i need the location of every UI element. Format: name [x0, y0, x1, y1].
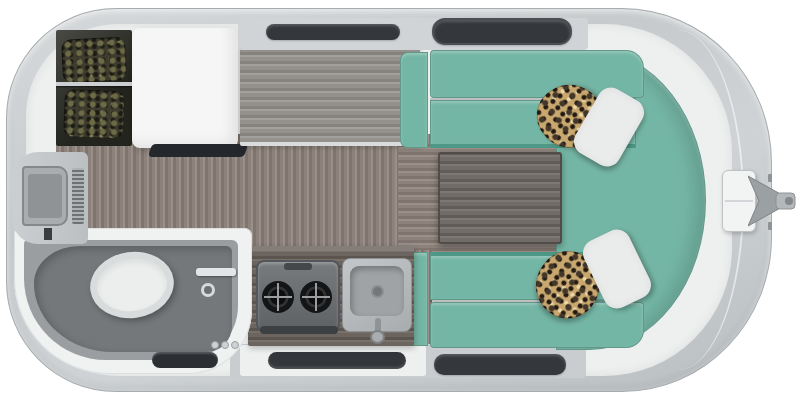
stove-lid-handle [284, 263, 312, 270]
sink-drain [371, 285, 384, 298]
stove-front-rail [260, 326, 338, 334]
trailer-floor-plan [0, 0, 800, 400]
burner-grate-v [277, 283, 279, 311]
bath-knob-3 [231, 341, 239, 349]
cabinet-vent [148, 144, 248, 157]
shower-mixer-knob [201, 283, 215, 297]
window-below-dinette [434, 354, 566, 375]
tv-speaker-grille-icon [72, 168, 84, 224]
closet-rod [56, 82, 132, 86]
window-above-dinette [432, 18, 572, 45]
hanging-clothes-lower [63, 89, 125, 139]
hanging-clothes-upper [61, 36, 127, 83]
tv-stand [44, 228, 52, 240]
dinette-table [438, 152, 562, 244]
refrigerator-cabinet [132, 28, 238, 148]
stove-burner-left [262, 281, 294, 313]
shower-mixer-bar [196, 268, 236, 276]
dinette-top-bench-end [400, 52, 428, 148]
bath-knob-1 [211, 341, 219, 349]
window-above-counter [266, 24, 400, 40]
bath-floor-vent [152, 352, 218, 368]
tv-screen [28, 174, 62, 218]
wardrobe-closet [56, 30, 132, 146]
dinette-bottom-backrest [430, 302, 644, 348]
burner-grate-v [315, 283, 317, 311]
entry-door-mat [268, 352, 406, 369]
sink-faucet-knob [370, 330, 385, 344]
hitch-a-frame [748, 170, 798, 234]
stove-burner-right [300, 281, 332, 313]
gray-counter-top [240, 46, 420, 146]
bath-knob-2 [221, 341, 229, 349]
tv [22, 166, 68, 226]
